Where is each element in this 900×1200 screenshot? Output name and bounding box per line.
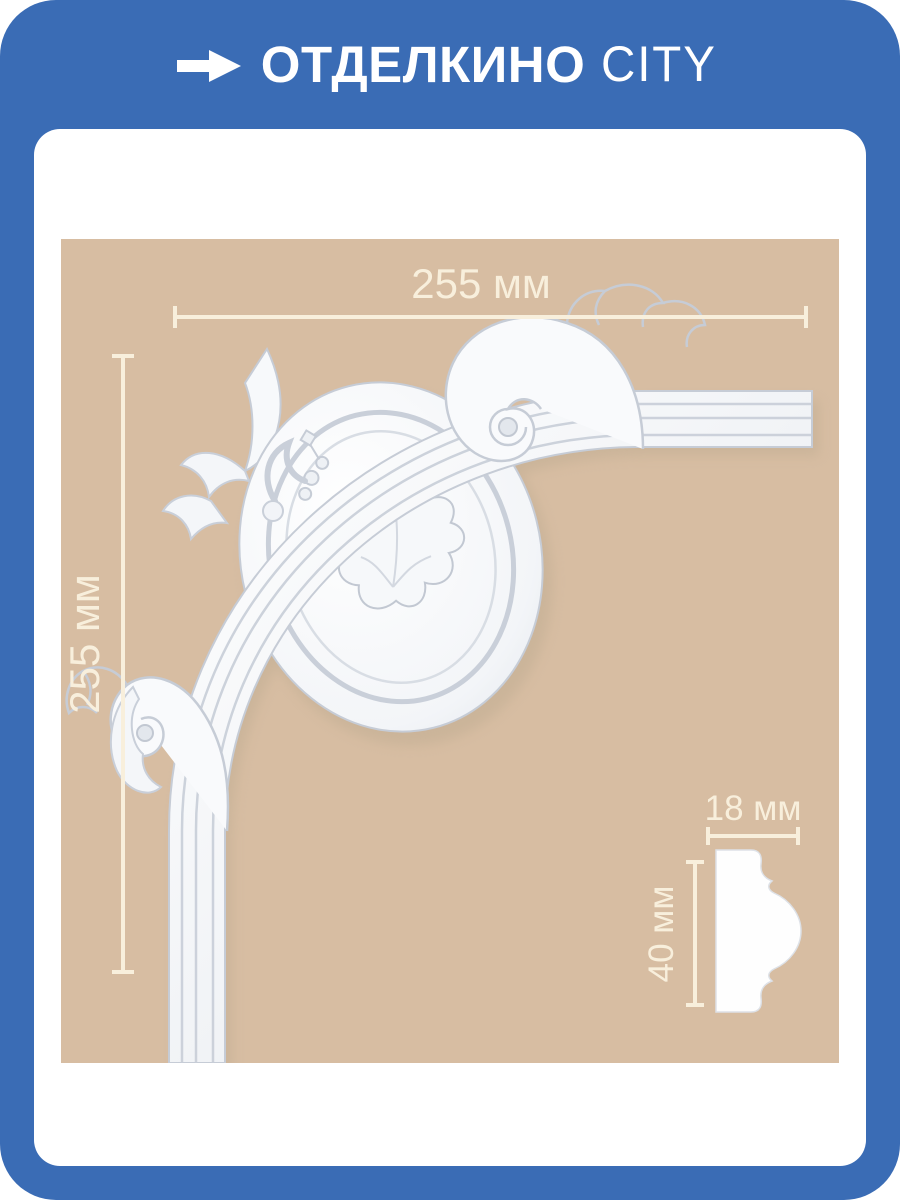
product-image: ОТДЕЛКИНО CITY — [0, 0, 900, 1200]
brand-frame: ОТДЕЛКИНО CITY — [0, 0, 900, 1200]
dimension-diagram: 255 мм 255 мм 18 мм 40 мм — [61, 239, 839, 1063]
brand-suffix: CITY — [601, 35, 717, 93]
profile-height-dimension-line — [686, 862, 704, 1005]
corner-molding-ornament — [67, 285, 812, 1063]
product-card: 255 мм 255 мм 18 мм 40 мм — [34, 129, 866, 1166]
product-photo: 255 мм 255 мм 18 мм 40 мм — [61, 239, 839, 1063]
height-dimension-label: 255 мм — [61, 574, 108, 714]
profile-height-dimension-label: 40 мм — [642, 886, 681, 983]
width-dimension-line — [175, 306, 806, 328]
height-dimension-line — [112, 356, 134, 972]
brand-logo: ОТДЕЛКИНО CITY — [0, 0, 900, 128]
right-arrow-icon — [177, 46, 245, 86]
width-dimension-label: 255 мм — [411, 260, 551, 307]
brand-name: ОТДЕЛКИНО — [261, 35, 585, 94]
rim-bead — [263, 501, 283, 521]
profile-width-dimension-label: 18 мм — [705, 789, 802, 828]
profile-width-dimension-line — [708, 827, 798, 845]
profile-cross-section — [716, 850, 801, 1012]
